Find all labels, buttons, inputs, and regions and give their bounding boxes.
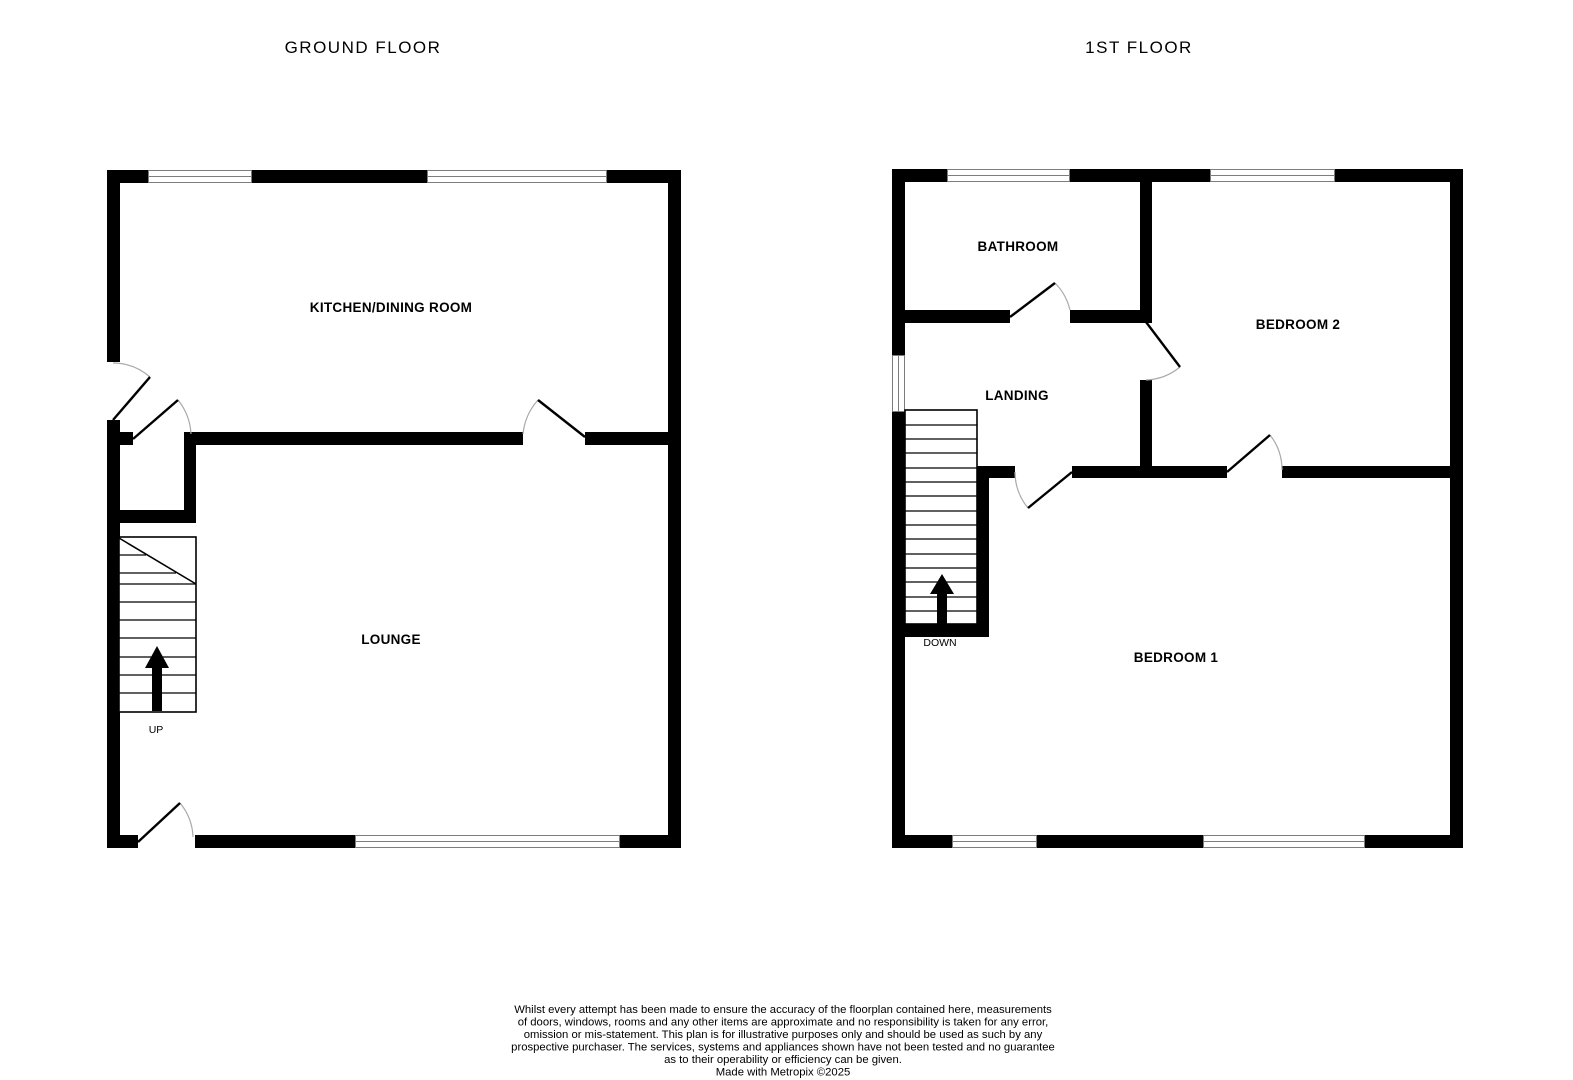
cupboard-door xyxy=(133,400,191,439)
room-label-lounge: LOUNGE xyxy=(361,632,421,647)
disclaimer-line: prospective purchaser. The services, sys… xyxy=(511,1042,1055,1054)
lounge-external-door xyxy=(138,803,193,842)
front-door xyxy=(113,363,150,420)
room-label-bedroom2: BEDROOM 2 xyxy=(1256,317,1340,332)
bedroom2-landing-door xyxy=(1146,322,1180,380)
wall-segment xyxy=(1072,466,1227,478)
wall-segment xyxy=(1037,835,1203,848)
floorplan-drawing: GROUND FLOOR xyxy=(0,0,1573,1080)
wall-segment xyxy=(892,412,905,848)
stairs-direction-label: UP xyxy=(149,724,164,736)
wall-segment xyxy=(1140,380,1152,478)
stairs-direction-label: DOWN xyxy=(923,637,956,649)
door-arc xyxy=(523,400,538,434)
ground-floor-windows xyxy=(149,171,620,848)
ground-floor-title: GROUND FLOOR xyxy=(285,38,442,57)
bedroom2-south-door xyxy=(1227,435,1282,472)
disclaimer-credit: Made with Metropix ©2025 xyxy=(716,1067,851,1079)
door-leaf xyxy=(1146,322,1180,367)
disclaimer-line: of doors, windows, rooms and any other i… xyxy=(518,1017,1049,1029)
door-arc xyxy=(1270,435,1282,470)
door-leaf xyxy=(138,803,180,842)
wall-segment xyxy=(620,835,681,848)
wall-segment xyxy=(1335,169,1463,182)
up-arrow-shaft xyxy=(152,666,162,711)
room-label-landing: LANDING xyxy=(985,388,1049,403)
first-floor-staircase: DOWN xyxy=(905,410,977,649)
first-floor-title: 1ST FLOOR xyxy=(1085,38,1193,57)
window xyxy=(356,836,620,848)
wall-segment xyxy=(1450,169,1463,848)
wall-segment xyxy=(892,169,905,355)
ground-floor-staircase: UP xyxy=(119,537,196,736)
wall-segment xyxy=(107,835,138,848)
disclaimer-line: omission or mis-statement. This plan is … xyxy=(524,1029,1043,1041)
wall-segment xyxy=(892,310,1010,323)
wall-segment xyxy=(1140,182,1152,323)
door-arc xyxy=(113,363,150,377)
bathroom-door xyxy=(1010,283,1070,317)
window xyxy=(1211,170,1335,182)
wall-segment xyxy=(252,170,427,183)
door-arc xyxy=(180,803,193,837)
floorplan-page: GROUND FLOOR xyxy=(0,0,1573,1080)
first-floor-plan: 1ST FLOOR xyxy=(892,38,1463,848)
room-label-bedroom1: BEDROOM 1 xyxy=(1134,650,1219,665)
ground-floor-plan: GROUND FLOOR xyxy=(107,38,681,848)
wall-segment xyxy=(119,510,196,523)
disclaimer-block: Whilst every attempt has been made to en… xyxy=(511,1004,1055,1079)
room-label-kitchen-dining: KITCHEN/DINING ROOM xyxy=(310,300,472,315)
window xyxy=(428,171,607,183)
ground-floor-walls xyxy=(107,170,681,848)
door-leaf xyxy=(133,400,178,439)
door-leaf xyxy=(1028,472,1072,508)
wall-segment xyxy=(107,432,133,445)
window xyxy=(953,836,1037,848)
wall-segment xyxy=(1282,466,1450,478)
door-arc xyxy=(178,400,191,434)
wall-segment xyxy=(107,170,120,362)
window xyxy=(149,171,252,183)
kitchen-lounge-door xyxy=(523,400,585,437)
wall-segment xyxy=(585,432,668,445)
door-leaf xyxy=(113,377,150,420)
disclaimer-line: Whilst every attempt has been made to en… xyxy=(514,1004,1052,1016)
wall-segment xyxy=(184,432,523,445)
wall-segment xyxy=(977,466,989,637)
bedroom1-door xyxy=(1015,472,1072,508)
down-arrow-shaft xyxy=(937,592,947,624)
wall-segment xyxy=(107,420,120,848)
window xyxy=(893,356,905,412)
wall-segment xyxy=(1070,169,1210,182)
wall-segment xyxy=(1365,835,1463,848)
room-label-bathroom: BATHROOM xyxy=(978,239,1059,254)
window xyxy=(1204,836,1365,848)
wall-segment xyxy=(905,624,989,637)
wall-segment xyxy=(184,432,196,523)
wall-segment xyxy=(195,835,355,848)
wall-segment xyxy=(1070,310,1152,323)
wall-segment xyxy=(988,466,1015,478)
wall-segment xyxy=(892,835,952,848)
door-arc xyxy=(1015,472,1028,508)
door-leaf xyxy=(1010,283,1055,317)
window xyxy=(948,170,1070,182)
door-arc xyxy=(1146,367,1180,380)
disclaimer-line: as to their operability or efficiency ca… xyxy=(664,1054,902,1066)
door-leaf xyxy=(1227,435,1270,472)
door-arc xyxy=(1055,283,1070,310)
door-leaf xyxy=(538,400,585,437)
wall-segment xyxy=(668,170,681,848)
